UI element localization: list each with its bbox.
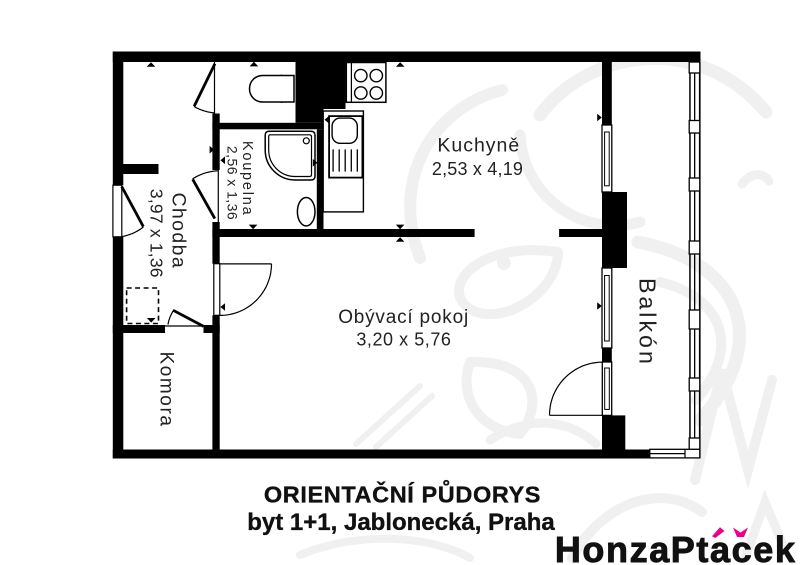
svg-text:HonzaPtacek: HonzaPtacek [555, 529, 797, 565]
svg-text:2,53 x 4,19: 2,53 x 4,19 [432, 159, 523, 179]
svg-text:Komora: Komora [155, 351, 176, 427]
svg-text:byt 1+1, Jablonecká, Praha: byt 1+1, Jablonecká, Praha [247, 509, 555, 536]
svg-text:2,56 x 1,36: 2,56 x 1,36 [224, 146, 240, 220]
svg-text:ORIENTAČNÍ PŮDORYS: ORIENTAČNÍ PŮDORYS [264, 478, 541, 507]
svg-text:Kuchyně: Kuchyně [437, 135, 520, 157]
svg-text:Balkón: Balkón [635, 278, 661, 367]
svg-text:Chodba: Chodba [167, 192, 189, 269]
svg-text:3,97 x 1,36: 3,97 x 1,36 [147, 189, 167, 278]
svg-text:Obývací pokoj: Obývací pokoj [338, 307, 469, 328]
svg-text:3,20 x 5,76: 3,20 x 5,76 [356, 329, 451, 349]
